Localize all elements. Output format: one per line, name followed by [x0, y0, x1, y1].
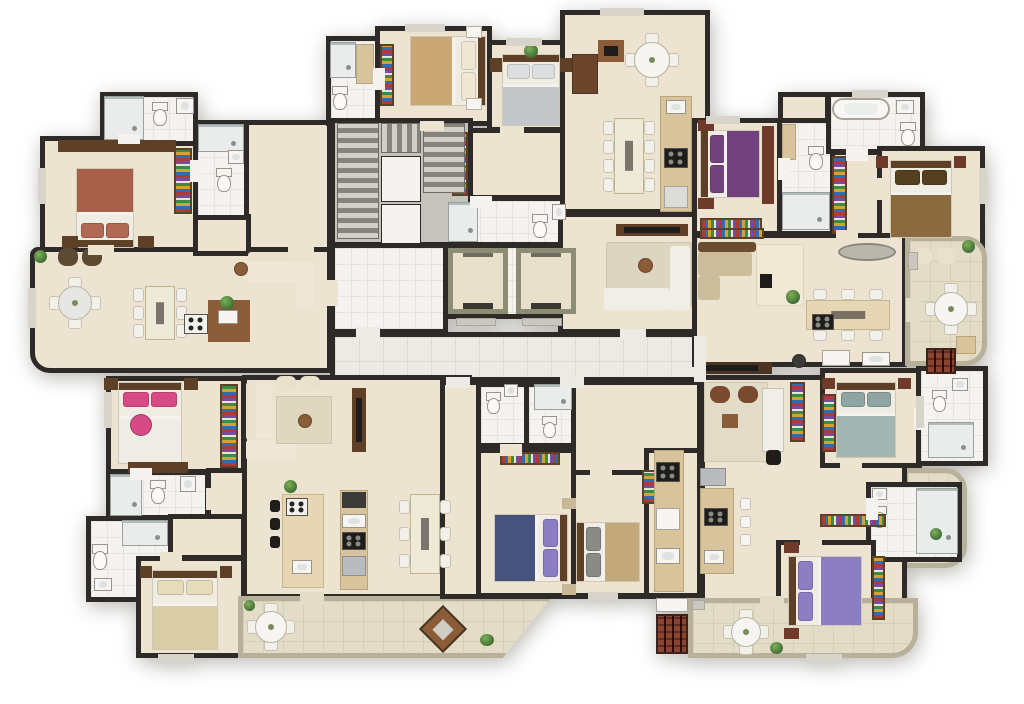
pillow: [586, 527, 601, 551]
nightstand: [466, 98, 482, 110]
door-opening: [88, 245, 114, 255]
shelf-contents: [824, 396, 834, 450]
burner: [660, 473, 665, 478]
bed-silver: [502, 54, 560, 126]
pillow: [710, 165, 725, 193]
cooktop: [664, 148, 688, 168]
burner: [670, 473, 675, 478]
armchair: [938, 248, 956, 264]
bed-cover: [495, 515, 538, 581]
door-opening: [778, 158, 790, 180]
shelf-contents: [176, 150, 190, 212]
door-mat: [456, 318, 496, 326]
window: [806, 654, 842, 662]
dresser: [762, 126, 774, 204]
sink: [504, 384, 518, 397]
burner: [718, 518, 723, 523]
headboard: [789, 557, 796, 625]
centerpiece: [743, 629, 749, 635]
chair: [399, 554, 410, 568]
bbq-grill: [656, 614, 688, 654]
stool: [740, 498, 751, 510]
burner: [356, 542, 361, 547]
stool: [740, 516, 751, 528]
table-runner: [831, 311, 865, 319]
window: [600, 8, 644, 16]
pillow: [543, 549, 558, 577]
toilet: [92, 544, 108, 570]
nightstand: [876, 156, 888, 168]
sink-basin: [556, 208, 563, 216]
sink-basin: [297, 564, 307, 571]
chair: [813, 330, 827, 341]
toilet-bowl: [901, 129, 914, 146]
sink-basin: [99, 581, 108, 587]
burner: [290, 501, 295, 506]
burner: [198, 318, 203, 323]
tv: [706, 365, 758, 371]
sink: [228, 150, 244, 164]
burner: [356, 535, 361, 540]
door-opening: [560, 377, 584, 388]
sofa-seat: [248, 262, 314, 282]
window: [28, 288, 36, 328]
window: [916, 396, 924, 428]
round-sink: [792, 354, 806, 368]
nightstand: [784, 542, 799, 553]
burner: [816, 322, 821, 327]
sink-basin: [232, 154, 240, 161]
nightstand: [560, 58, 572, 72]
shelf-contents: [702, 230, 762, 237]
door-mat: [908, 252, 918, 270]
burner: [718, 511, 723, 516]
toilet-bowl: [217, 175, 230, 192]
table-runner: [625, 141, 633, 171]
door-opening: [356, 327, 380, 338]
elevator: [448, 248, 508, 314]
chair: [603, 159, 614, 173]
burner: [668, 159, 673, 164]
centerpiece: [268, 624, 274, 630]
pillow: [586, 553, 601, 577]
pillow: [186, 580, 213, 595]
pillow: [461, 41, 476, 70]
pillow: [867, 392, 891, 407]
balcony-table: [726, 612, 766, 652]
burner: [346, 542, 351, 547]
stool: [270, 536, 280, 548]
window: [38, 168, 46, 204]
toilet-bowl: [93, 551, 106, 570]
door-opening: [326, 280, 338, 306]
headboard: [119, 383, 181, 390]
sofa-chaise: [670, 246, 690, 310]
toilet: [150, 480, 166, 504]
sink-basin: [348, 518, 360, 525]
nightstand: [220, 566, 232, 578]
pink-floral-motif: [130, 414, 152, 436]
shelf-contents: [644, 472, 654, 502]
tl-hall: [244, 120, 332, 252]
nightstand: [138, 236, 154, 248]
plant: [962, 240, 975, 253]
toilet-bowl: [933, 396, 946, 412]
shower-drain: [961, 445, 966, 450]
shower-drain: [155, 535, 160, 540]
balcony-sink: [956, 336, 976, 354]
elevator: [516, 248, 576, 314]
burner: [668, 152, 673, 157]
microwave: [342, 492, 366, 508]
stair-flight: [423, 123, 465, 193]
tub-basin: [844, 103, 879, 115]
pillow: [157, 580, 184, 595]
sideboard: [838, 243, 896, 261]
centerpiece: [948, 306, 954, 312]
plant: [786, 290, 800, 304]
pillow: [461, 72, 476, 101]
burner: [346, 535, 351, 540]
window: [506, 38, 542, 46]
bed-navy: [494, 514, 568, 582]
armchair: [276, 376, 296, 391]
door-opening: [373, 68, 385, 90]
sink-basin: [181, 102, 190, 110]
closet: [832, 156, 847, 234]
headboard: [837, 383, 895, 390]
cooktop: [812, 314, 834, 330]
cooktop: [342, 532, 366, 550]
sink: [94, 578, 112, 591]
dishwasher: [822, 350, 850, 366]
toilet: [152, 102, 168, 126]
window: [979, 168, 987, 204]
headboard: [701, 131, 708, 197]
apartment-building-floor-plan: [0, 0, 1024, 704]
nightstand: [954, 156, 966, 168]
door-opening: [446, 377, 470, 388]
nightstand: [562, 584, 576, 595]
sofa-back: [698, 242, 756, 252]
bed-cover: [818, 557, 861, 625]
bed-tan: [410, 36, 486, 106]
toilet-bowl: [151, 487, 164, 504]
door-opening: [590, 466, 612, 478]
sink-basin: [508, 387, 515, 393]
wardrobe: [872, 556, 885, 620]
shower-drain: [346, 65, 351, 70]
side-table: [722, 414, 738, 428]
nightstand: [698, 198, 714, 209]
sink: [656, 548, 680, 564]
sink-basin: [869, 356, 884, 363]
sink-basin: [662, 552, 674, 560]
door-opening: [288, 247, 314, 257]
dining-table: [606, 118, 652, 194]
island-sink: [292, 560, 312, 574]
chair: [603, 121, 614, 135]
shower: [782, 192, 830, 230]
pillow: [151, 392, 177, 407]
bed-violet: [788, 556, 862, 626]
chair: [869, 289, 883, 300]
shower-drain: [468, 228, 473, 233]
centerpiece: [649, 57, 655, 63]
bed-cover: [77, 169, 133, 215]
burner: [670, 466, 675, 471]
stair-landing: [381, 156, 421, 202]
bed-cover: [724, 131, 759, 197]
window: [706, 116, 740, 124]
door-opening: [470, 196, 492, 208]
sofa-back: [246, 382, 256, 440]
shower: [122, 520, 168, 546]
fridge: [700, 468, 726, 486]
plant: [34, 250, 47, 263]
headboard: [577, 523, 584, 581]
door-opening: [866, 498, 878, 520]
sink: [952, 378, 968, 391]
toilet: [808, 146, 824, 170]
toilet: [532, 214, 548, 238]
shower: [928, 422, 974, 458]
pillow: [81, 223, 104, 238]
shower-glass: [199, 125, 243, 127]
plant: [480, 634, 494, 646]
coffee-table: [298, 414, 312, 428]
chair: [176, 288, 187, 302]
nightstand: [466, 26, 482, 38]
chair: [644, 159, 655, 173]
toilet-bowl: [809, 153, 822, 170]
tl-hall-2: [193, 214, 251, 256]
elevator-door: [531, 303, 561, 309]
coffee-table: [638, 258, 653, 273]
shelf-contents: [792, 384, 803, 440]
sofa-chaise: [698, 276, 720, 300]
bbq-counter: [656, 598, 688, 612]
cooktop: [286, 498, 308, 516]
office-chair: [766, 450, 781, 465]
dishwasher: [656, 508, 680, 530]
island-sink: [218, 310, 238, 324]
nightstand: [490, 58, 502, 72]
sink-basin: [876, 491, 883, 497]
chair: [841, 330, 855, 341]
shower-glass: [929, 423, 973, 425]
door-mat: [692, 600, 705, 610]
sink: [666, 100, 686, 114]
game-console: [760, 274, 772, 288]
toilet: [932, 390, 947, 412]
door-opening: [836, 230, 858, 242]
chair: [869, 330, 883, 341]
bed-cover: [411, 37, 455, 105]
elevator-rail: [463, 253, 493, 257]
pillow: [841, 392, 865, 407]
sink-basin: [184, 480, 192, 488]
cooktop: [656, 462, 680, 482]
stair-landing: [381, 204, 421, 244]
plant: [220, 296, 234, 310]
window: [588, 592, 618, 600]
nightstand: [62, 236, 78, 248]
toilet: [542, 416, 557, 438]
chair: [399, 527, 410, 541]
burner: [299, 508, 304, 513]
burner: [825, 317, 830, 322]
door-opening: [130, 468, 152, 480]
table-top: [432, 618, 453, 639]
bathtub: [832, 98, 890, 120]
shelf-contents: [222, 386, 236, 466]
door-opening: [620, 329, 646, 340]
sink-basin: [956, 381, 964, 387]
wardrobe: [220, 384, 238, 468]
burner: [678, 152, 683, 157]
round-table: [628, 36, 676, 84]
tv: [604, 46, 618, 56]
chair: [133, 306, 144, 320]
burner: [290, 508, 295, 513]
bed-teal: [836, 382, 896, 458]
bed-cover: [153, 603, 217, 649]
bed-cover: [891, 192, 951, 237]
cooktop: [704, 508, 728, 526]
headboard: [478, 37, 485, 105]
stool: [270, 500, 280, 512]
burner: [188, 318, 193, 323]
vanity: [782, 124, 796, 160]
toilet: [486, 392, 501, 414]
pillow: [532, 64, 555, 79]
toilet: [332, 86, 348, 110]
toilet: [216, 168, 232, 192]
toilet: [900, 122, 916, 146]
window: [104, 392, 112, 428]
nightstand: [104, 378, 118, 390]
sink-basin: [709, 554, 719, 561]
burner: [188, 325, 193, 330]
chair: [440, 527, 451, 541]
plant: [770, 642, 783, 654]
toilet-bowl: [543, 422, 556, 438]
wardrobe: [822, 394, 836, 452]
shower-glass: [783, 193, 829, 195]
sink: [176, 98, 194, 114]
coffee-table: [234, 262, 248, 276]
shower-glass: [123, 521, 167, 523]
window: [158, 654, 194, 662]
wine-cabinet: [572, 54, 598, 94]
shower-drain: [132, 502, 137, 507]
fridge: [664, 186, 688, 208]
armchair: [710, 386, 730, 403]
bed-purple: [700, 130, 760, 198]
dining-table: [136, 286, 184, 340]
nightstand: [184, 378, 198, 390]
wardrobe-shelf: [58, 140, 176, 152]
floor-plan-screenshot: [0, 0, 1024, 704]
burner: [708, 518, 713, 523]
stair-flight: [381, 123, 421, 153]
shower: [110, 474, 142, 516]
chair: [440, 500, 451, 514]
burner: [660, 466, 665, 471]
door-opening: [118, 134, 140, 144]
door-opening: [694, 336, 706, 382]
door-opening: [300, 592, 324, 604]
wall-divider: [524, 382, 529, 448]
armchair: [300, 376, 320, 391]
table-runner: [421, 518, 429, 550]
shower-glass: [917, 489, 957, 491]
burner: [708, 511, 713, 516]
bbq-grill: [926, 348, 956, 374]
door-opening: [874, 178, 886, 200]
elevator-rail: [531, 253, 561, 257]
sink: [552, 204, 566, 220]
nightstand: [140, 566, 152, 578]
pillow: [895, 170, 920, 185]
chair: [644, 121, 655, 135]
bookshelf: [790, 382, 805, 442]
chair: [440, 554, 451, 568]
bed-cover: [503, 84, 559, 126]
door-mat: [522, 318, 562, 326]
plant: [244, 600, 255, 611]
elevator-door: [463, 303, 493, 309]
chair: [644, 178, 655, 192]
stool: [740, 534, 751, 546]
tv: [356, 398, 362, 442]
shower-glass: [105, 97, 143, 99]
sink: [896, 100, 914, 114]
double-sink: [862, 352, 890, 366]
pillow: [798, 561, 813, 590]
tv: [624, 227, 680, 233]
pillow: [710, 135, 725, 163]
shower-drain: [231, 141, 236, 146]
chair: [644, 140, 655, 154]
shower-glass: [331, 43, 355, 45]
dining-table: [402, 494, 448, 574]
door-opening: [906, 298, 918, 322]
headboard: [153, 571, 217, 578]
shelf-contents: [834, 158, 845, 232]
cooktop: [184, 314, 208, 334]
headboard: [560, 515, 567, 581]
door-opening: [160, 552, 182, 564]
burner: [299, 501, 304, 506]
burner: [678, 159, 683, 164]
window: [852, 90, 888, 98]
chair: [603, 140, 614, 154]
stair-flight: [337, 123, 379, 239]
pillow: [922, 170, 947, 185]
shower-drain: [946, 535, 951, 540]
sofa-seat: [604, 288, 670, 310]
toilet-bowl: [533, 221, 546, 238]
nightstand: [822, 378, 835, 389]
table-runner: [156, 302, 164, 324]
sofa-chaise: [296, 282, 314, 308]
armchair: [738, 386, 758, 403]
pillow: [507, 64, 530, 79]
door-opening: [500, 127, 524, 137]
round-table: [928, 286, 974, 332]
